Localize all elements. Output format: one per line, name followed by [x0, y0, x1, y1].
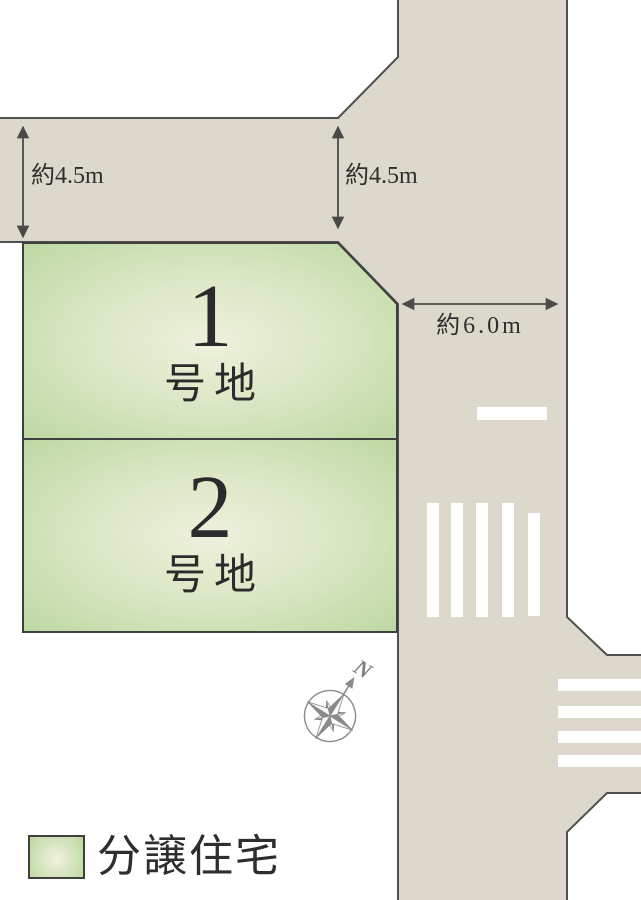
site-plan-map: N — [0, 0, 641, 900]
plot-1-number: 1 — [23, 272, 397, 362]
plot-2-number: 2 — [23, 463, 397, 553]
crosswalk-stripe — [528, 513, 540, 616]
dimension-label-north-road-right: 約4.5m — [345, 163, 418, 189]
road-edge-east-upper — [567, 0, 641, 655]
plot-2-label: 2 号地 — [23, 463, 397, 597]
road-edge-north — [0, 0, 398, 118]
crosswalk-stripe — [558, 755, 641, 767]
crosswalk-stripe — [451, 503, 463, 617]
crosswalk-stripe — [558, 679, 641, 691]
plot-1-label: 1 号地 — [23, 272, 397, 406]
legend-label: 分譲住宅 — [97, 835, 281, 879]
center-line-dash — [477, 407, 547, 420]
crosswalk-stripe — [502, 503, 514, 617]
crosswalk-stripe — [558, 706, 641, 718]
compass-rose: N — [293, 642, 390, 753]
dimension-label-north-road-left: 約4.5m — [31, 163, 104, 189]
plot-2-suffix: 号地 — [23, 555, 397, 597]
crosswalk-stripe — [476, 503, 488, 617]
crosswalk-stripe — [558, 731, 641, 743]
legend: 分譲住宅 — [28, 835, 281, 879]
site-plan: N 約4.5m 約4.5m 約6.0m 1 号地 2 号地 分譲住宅 — [0, 0, 641, 900]
dimension-label-east-road: 約6.0m — [400, 313, 560, 339]
plot-1-suffix: 号地 — [23, 364, 397, 406]
legend-swatch-plot-color — [28, 835, 85, 879]
crosswalk-stripe — [427, 503, 439, 617]
